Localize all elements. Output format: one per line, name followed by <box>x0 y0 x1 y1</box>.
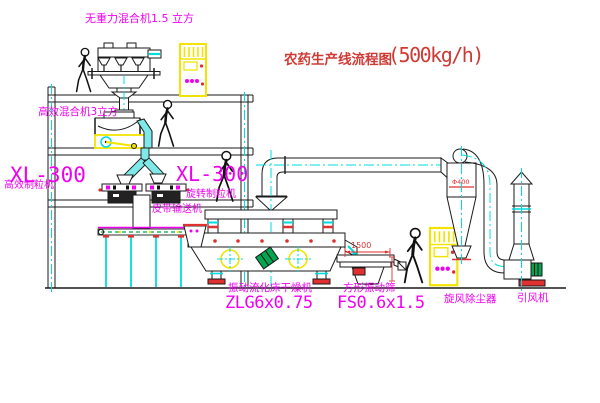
dimension-1500: 1500 <box>351 242 371 250</box>
label-high-efficiency-mixer: 高效混合机3立方 <box>38 107 118 118</box>
label-dryer-model: ZLG6x0.75 <box>225 295 313 312</box>
worker-figure <box>77 48 91 91</box>
label-belt-conveyor: 皮带输送机 <box>152 205 202 215</box>
label-granulator-mid: 旋转制粒机 <box>186 190 236 200</box>
exhaust-stack-and-fan <box>504 168 545 291</box>
discharge-column <box>133 195 150 228</box>
worker-figure <box>159 100 174 146</box>
worker-figure <box>405 229 423 283</box>
fan-motor <box>531 263 542 276</box>
label-xl300-mid: XL-300 <box>176 164 248 184</box>
label-sieve-name: 方形振动筛 <box>343 283 396 294</box>
control-cabinet-2 <box>430 228 457 285</box>
label-sieve-model: FS0.6x1.5 <box>337 295 425 312</box>
cyclone-top-cap <box>453 149 467 163</box>
label-gravity-free-mixer: 无重力混合机1.5 立方 <box>85 13 194 24</box>
fan-base <box>519 280 545 286</box>
dryer-body <box>188 233 345 247</box>
pesticide-line-flow-diagram: 农药生产线流程图 (500kg/h) 无重力混合机1.5 立方 高效混合机3立方… <box>0 0 600 403</box>
diagram-title: 农药生产线流程图 <box>284 54 392 68</box>
sieve-deck <box>337 255 394 262</box>
sieve-motor <box>353 268 365 275</box>
fan-housing <box>504 260 531 279</box>
floor-slab-1 <box>48 95 253 102</box>
vibrating-sieve <box>337 246 406 284</box>
dimension-cyclone-diameter: Φ400 <box>452 179 470 186</box>
control-cabinet-1 <box>180 44 206 96</box>
label-fan: 引风机 <box>517 293 549 304</box>
label-cyclone: 旋风除尘器 <box>444 294 497 305</box>
label-dryer-name: 振动流化床干燥机 <box>228 283 312 294</box>
conveyor-legs <box>106 235 181 287</box>
diagram-capacity: (500kg/h) <box>388 45 483 65</box>
fluid-bed-dryer <box>183 210 357 284</box>
label-granulator-left: 高效制粒机 <box>4 181 54 191</box>
dryer-hood <box>205 210 337 219</box>
